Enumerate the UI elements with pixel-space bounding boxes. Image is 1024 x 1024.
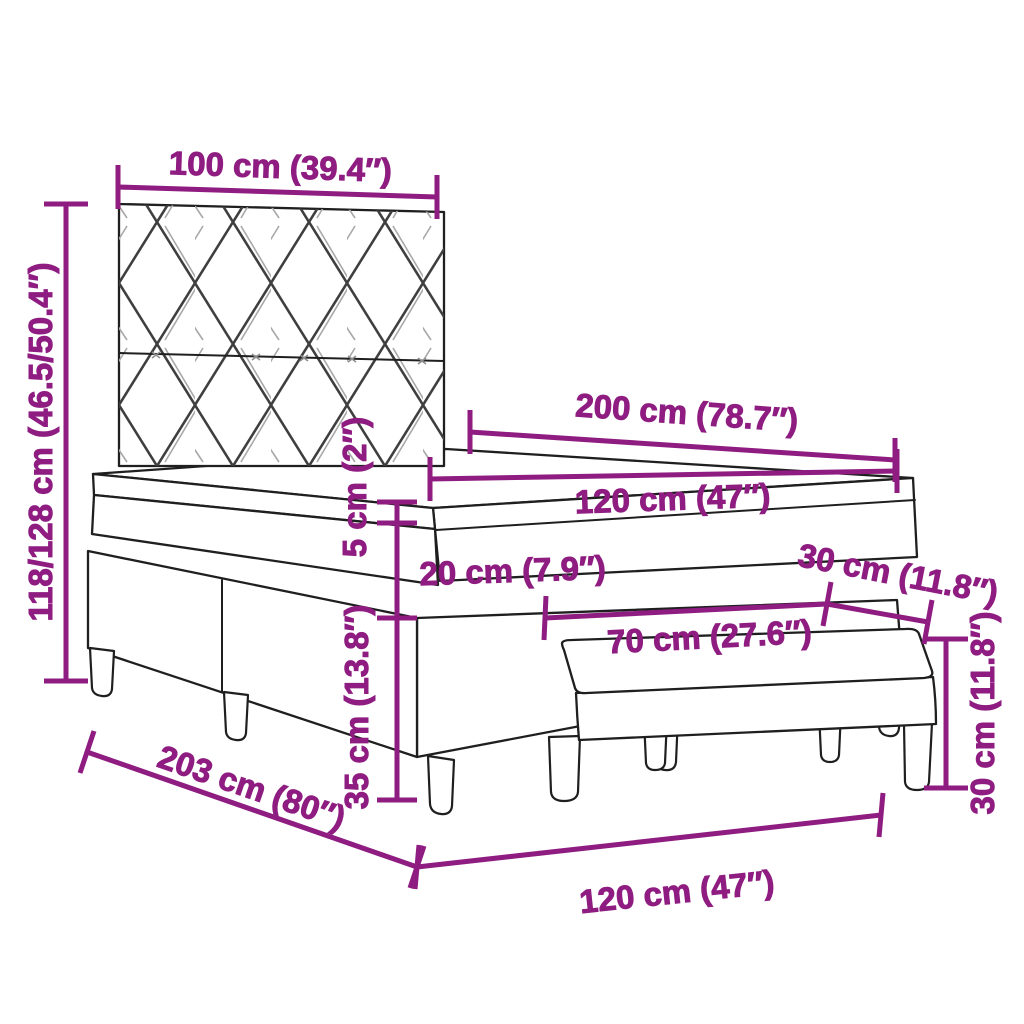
dim-bed-width: 120 cm (47″)	[415, 793, 883, 920]
bench-leg-front-left	[549, 736, 580, 801]
bed-leg-front-left	[90, 648, 114, 696]
dim-headboard-width-label: 100 cm (39.4″)	[168, 144, 392, 189]
dim-mattress-width-label: 120 cm (47″)	[574, 477, 771, 521]
bed-dimension-diagram: 100 cm (39.4″) 118/128 cm (46.5/50.4″) 2…	[0, 0, 1024, 1024]
bench-leg-front-right	[904, 723, 932, 790]
dim-bench-height-label: 30 cm (11.8″)	[964, 612, 1001, 815]
dim-bed-width-label: 120 cm (47″)	[578, 863, 776, 920]
bed-leg-front-foot	[428, 756, 454, 814]
dim-topper-thickness-label: 5 cm (2″)	[336, 417, 373, 558]
dim-base-height-label: 35 cm (13.8″)	[338, 605, 375, 810]
bed-leg-front-middle	[224, 692, 248, 740]
dim-mattress-thickness-label: 20 cm (7.9″)	[419, 549, 607, 592]
dim-bed-length-label: 200 cm (78.7″)	[574, 386, 799, 438]
dim-headboard-height-label: 118/128 cm (46.5/50.4″)	[22, 263, 59, 622]
diagram-canvas: 100 cm (39.4″) 118/128 cm (46.5/50.4″) 2…	[0, 0, 1024, 1024]
dim-headboard-height: 118/128 cm (46.5/50.4″)	[22, 204, 88, 681]
headboard-diamond-pattern	[119, 204, 444, 466]
